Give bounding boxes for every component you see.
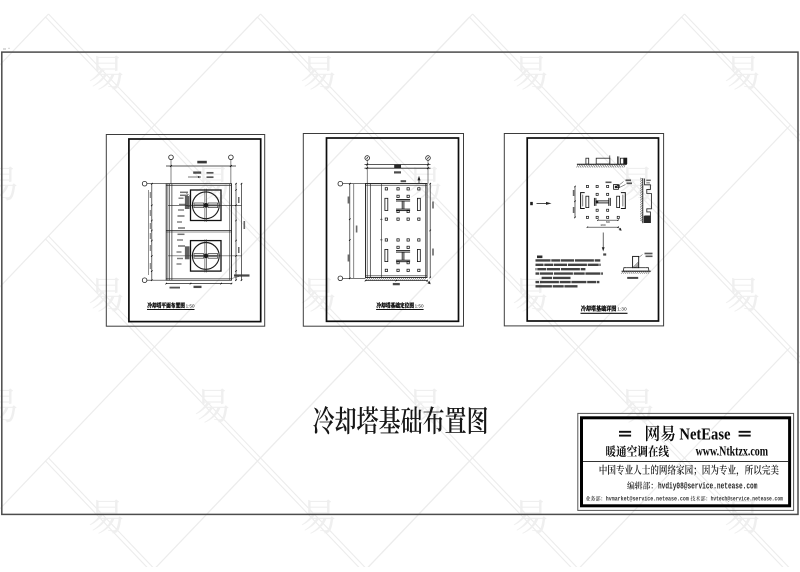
svg-text:1600: 1600 [600, 224, 606, 227]
svg-text:1:50: 1:50 [186, 303, 195, 308]
svg-text:hvdiy08@service.netease.com: hvdiy08@service.netease.com [658, 481, 758, 492]
svg-text:1:30: 1:30 [617, 307, 627, 313]
svg-text:NetEase: NetEase [679, 424, 730, 443]
svg-text:www.Ntktzx.com: www.Ntktzx.com [696, 443, 769, 458]
svg-text:hvmarket@service.netease.com: hvmarket@service.netease.com [606, 495, 689, 502]
svg-text:800: 800 [606, 221, 611, 224]
svg-text:hvtech@service.netease.com: hvtech@service.netease.com [711, 495, 784, 502]
svg-text:1:50: 1:50 [415, 303, 424, 308]
